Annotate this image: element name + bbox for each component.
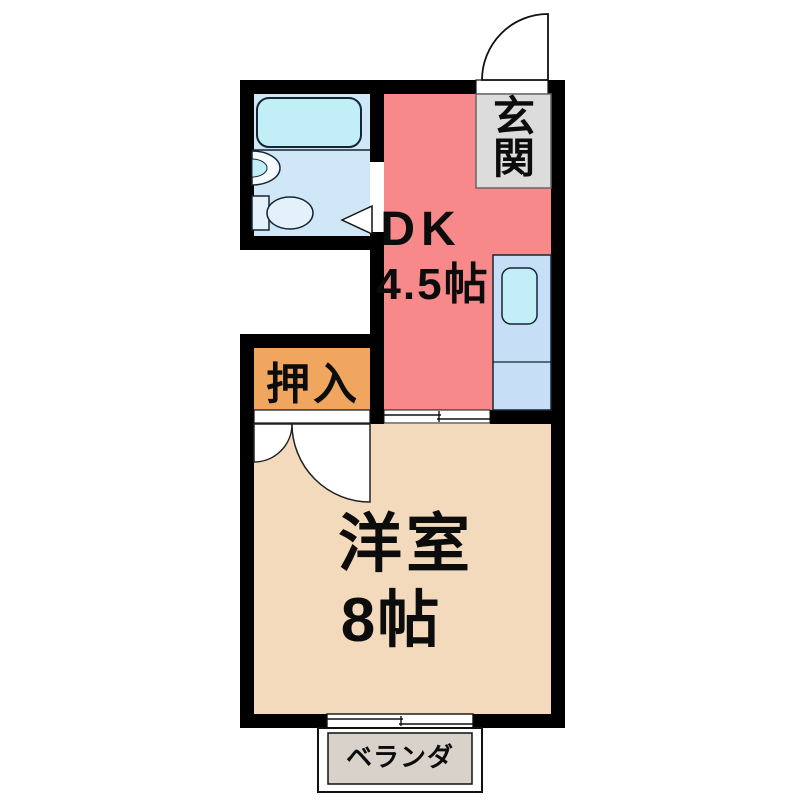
wall-oshiire-top: [240, 334, 384, 348]
sliding-door-frame: [384, 410, 490, 423]
wall-left-lower: [240, 334, 254, 728]
wall-right: [551, 80, 565, 728]
veranda-window-icon: [327, 714, 473, 728]
entrance-threshold: [476, 80, 548, 94]
bathtub-icon: [257, 98, 361, 147]
kitchen-unit: [493, 255, 551, 410]
western-room-label: 洋室: [338, 508, 474, 580]
wall-top-left: [240, 80, 476, 94]
dk-size-label: 4.5帖: [376, 260, 489, 309]
genkan-label-char1: 玄: [493, 93, 535, 140]
floorplan-drawing: 玄 関: [0, 0, 800, 800]
wall-mid-vertical-upper: [370, 93, 384, 162]
dk-label: DK: [380, 203, 461, 256]
floorplan-page: 玄 関: [0, 0, 800, 800]
oshiire-label: 押入: [266, 360, 360, 409]
wall-bottom-right: [473, 714, 565, 728]
wall-bathroom-bottom: [240, 236, 384, 250]
dk-western-sliding-door-icon: [384, 410, 490, 423]
oshiire-sliding-door-icon: [254, 410, 370, 423]
wall-dk-western: [490, 410, 565, 424]
genkan-label-char2: 関: [493, 135, 535, 182]
toilet-bowl-icon: [267, 197, 313, 229]
veranda-label: ベランダ: [346, 742, 454, 772]
kitchen-sink-icon: [502, 268, 537, 324]
western-room-size-label: 8帖: [341, 586, 441, 655]
window-frame: [327, 714, 473, 728]
